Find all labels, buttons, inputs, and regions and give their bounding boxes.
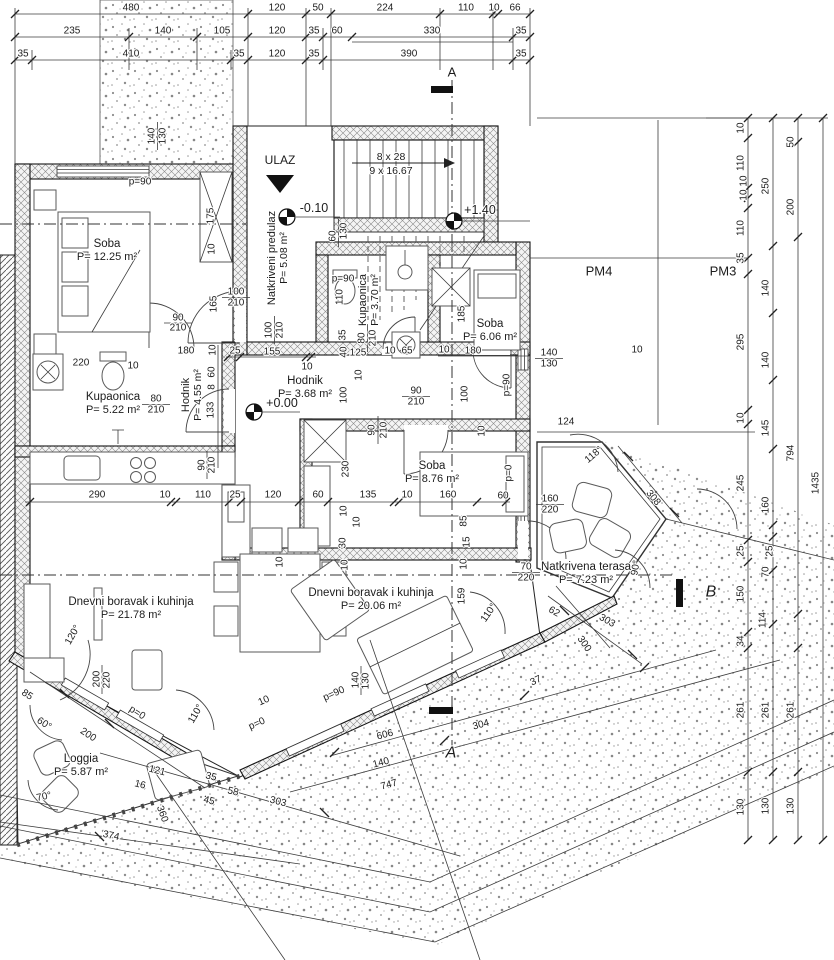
dimension-label: 295 [736, 333, 747, 350]
dimension-label: 220 [73, 358, 90, 369]
dimension-label: 35 [233, 49, 245, 60]
section-label: A [445, 745, 457, 762]
dimension-label: 235 [64, 26, 81, 37]
dimension-label: 40 [339, 346, 350, 358]
dimension-label: 133 [206, 401, 217, 418]
level-marker-icon [246, 404, 262, 420]
dimension-label: 120 [269, 26, 286, 37]
dimension-label: 60 [312, 490, 324, 501]
dimension-label: 124 [558, 417, 575, 428]
dimension-label: 100 [339, 386, 350, 403]
dimension-label: 10 [352, 516, 363, 528]
dimension-label: 290 [89, 490, 106, 501]
dimension-label: 85 [459, 515, 470, 527]
dimension-label: 80 [150, 394, 162, 405]
dimension-label: 110 [195, 490, 211, 501]
dimension-label: 261 [736, 701, 747, 718]
room-name: Dnevni boravak i kuhinja [68, 596, 194, 608]
dimension-label: 330 [424, 26, 441, 37]
dimension-label: 210 [207, 456, 218, 473]
room-area: P= 4.55 m² [192, 369, 204, 421]
dimension-label: 10 [159, 490, 171, 501]
room-area: P= 3.70 m² [369, 274, 381, 326]
dimension-label: 140 [147, 127, 158, 144]
room-name: Soba [94, 238, 121, 250]
dimension-label: 110 [458, 3, 474, 14]
dimension-label: 175 [206, 207, 217, 224]
dimension-label: 70 [761, 566, 772, 578]
coffee-table [132, 650, 162, 690]
dimension-label: 10 [207, 243, 218, 255]
room-name: Soba [419, 460, 446, 472]
dimension-label: 100 [228, 287, 245, 298]
dimension-label: p=90 [332, 274, 355, 285]
room-area: P= 8.76 m² [405, 473, 459, 485]
dimension-label: 130 [158, 127, 169, 144]
dimension-label: 220 [102, 671, 113, 688]
floor-plan-canvas: 4801205022411010662351401051203560330353… [0, 0, 834, 960]
dimension-label: 480 [123, 3, 140, 14]
dimension-label: 250 [761, 177, 772, 194]
dimension-label: 50 [312, 3, 324, 14]
dimension-label: 155 [264, 347, 281, 358]
dimension-label: 35 [736, 252, 747, 264]
dimension-label: 110 [736, 220, 747, 236]
section-label: B [706, 584, 717, 601]
dimension-label: 1435 [811, 471, 822, 494]
section-bar-a-top [431, 86, 453, 93]
dimension-label: 35 [515, 26, 527, 37]
dimension-label: 10 [739, 189, 750, 201]
room-name: Hodnik [287, 375, 323, 387]
section-label: A [448, 65, 457, 80]
dimension-label: 10 [459, 558, 470, 570]
floor-plan-page: 4801205022411010662351401051203560330353… [0, 0, 834, 960]
dimension-label: 210 [170, 323, 187, 334]
level-label: +1.40 [464, 203, 496, 217]
dimension-label: 130 [761, 797, 772, 814]
entry-label: ULAZ [265, 153, 296, 167]
room-name: Natkrivena terasa [541, 561, 632, 573]
level-marker-icon [279, 209, 295, 225]
dimension-label: 130 [541, 359, 558, 370]
dimension-label: 261 [786, 701, 797, 718]
dimension-label: 100 [264, 321, 275, 338]
parking-label: PM4 [586, 264, 613, 279]
dimension-label: 140 [541, 348, 558, 359]
dimension-label: 25 [765, 545, 776, 557]
dimension-label: 140 [155, 26, 172, 37]
dimension-label: 10 [739, 175, 750, 187]
dimension-label: 15 [462, 536, 473, 548]
room-area: P= 7.23 m² [559, 574, 613, 586]
dimension-label: 10 [301, 362, 313, 373]
dimension-label: 80 [357, 332, 368, 344]
level-label: -0.10 [300, 201, 329, 215]
dimension-label: 70 [520, 562, 532, 573]
dimension-label: 35 [515, 49, 527, 60]
stair-label: 9 x 16.67 [369, 165, 412, 177]
dimension-label: 10 [438, 345, 450, 356]
toilet [102, 362, 124, 390]
dimension-label: 110 [736, 155, 747, 171]
dimension-label: 140 [761, 351, 772, 368]
dimension-label: 10 [401, 490, 413, 501]
dimension-label: 60 [331, 26, 343, 37]
room-name: Kupaonica [86, 391, 141, 403]
room-name: Hodnik [180, 377, 192, 412]
room-name: Natkriveni predulaz [266, 211, 278, 305]
parking-label: PM3 [710, 264, 737, 279]
dimension-label: 224 [377, 3, 394, 14]
dimension-label: 165 [209, 295, 220, 312]
dimension-label: 65 [401, 346, 413, 357]
dimension-label: 160 [761, 496, 772, 513]
dimension-label: 10 [208, 344, 219, 356]
dimension-label: 66 [509, 3, 521, 14]
section-bar-a-bottom [429, 707, 453, 714]
dimension-label: 100 [460, 385, 471, 402]
room-name: Soba [477, 318, 504, 330]
dimension-label: 10 [275, 556, 286, 568]
dimension-label: 8 [207, 384, 218, 390]
dimension-label: 159 [457, 587, 468, 604]
sofa [24, 584, 50, 662]
level-label: +0.00 [266, 396, 298, 410]
dimension-label: 130 [361, 672, 372, 689]
dimension-label: 130 [339, 222, 350, 239]
dimension-label: 10 [736, 412, 747, 424]
dimension-label: 10 [631, 345, 643, 356]
dimension-label: p=90 [502, 373, 513, 396]
dimension-label: 210 [379, 421, 390, 438]
dimension-label: 160 [542, 494, 559, 505]
dimension-label: 35 [308, 49, 320, 60]
dimension-label: 10 [384, 346, 396, 357]
dimension-label: 410 [123, 49, 140, 60]
dimension-label: 10 [127, 361, 139, 372]
dimension-label: 34 [736, 635, 747, 647]
dimension-label: 210 [275, 321, 286, 338]
room-area: P= 5.08 m² [278, 232, 290, 284]
dimension-label: 35 [338, 329, 349, 341]
dimension-label: 25 [229, 346, 241, 357]
dimension-label: 185 [457, 305, 468, 322]
dimension-label: p=90 [129, 177, 152, 188]
dimension-label: 60 [328, 230, 339, 242]
dimension-label: 62 [546, 604, 562, 619]
dimension-label: 25 [736, 545, 747, 557]
dimension-label: 140 [761, 279, 772, 296]
dimension-label: 125 [350, 348, 367, 359]
dimension-label: 180 [465, 346, 482, 357]
room-area: P= 12.25 m² [77, 251, 138, 263]
dimension-label: 35 [308, 26, 320, 37]
room-area: P= 5.22 m² [86, 404, 140, 416]
dimension-label: 60 [497, 491, 509, 502]
section-bar-b [676, 579, 683, 607]
level-marker-icon [446, 213, 462, 229]
dimension-label: 261 [761, 701, 772, 718]
dimension-label: 10 [477, 425, 488, 437]
dimension-label: 210 [408, 397, 425, 408]
room-area: P= 6.06 m² [463, 331, 517, 343]
dimension-label: 50 [786, 136, 797, 148]
dimension-label: 10 [354, 369, 365, 381]
dimension-label: 210 [228, 298, 245, 309]
dimension-label: 30 [338, 537, 349, 549]
room-area: P= 21.78 m² [101, 609, 162, 621]
dimension-label: 200 [786, 198, 797, 215]
dimension-label: 110 [335, 289, 346, 305]
dimension-label: 230 [341, 460, 352, 477]
dimension-label: 390 [401, 49, 418, 60]
dimension-label: 60 [207, 366, 218, 378]
dimension-label: 120 [269, 49, 286, 60]
kitchen-sink [64, 456, 100, 480]
room-name: Dnevni boravak i kuhinja [308, 587, 434, 599]
dimension-label: p=0 [504, 464, 515, 481]
dimension-label: 35 [17, 49, 29, 60]
dimension-label: 130 [736, 798, 747, 815]
dimension-label: 135 [360, 490, 377, 501]
dimension-label: 160 [440, 490, 457, 501]
dimension-label: 120 [265, 490, 282, 501]
dimension-label: 90 [410, 386, 422, 397]
dimension-label: 220 [542, 505, 559, 516]
dimension-label: 25 [229, 490, 241, 501]
dimension-label: 220 [518, 573, 535, 584]
dimension-label: 90 [367, 424, 378, 436]
dimension-label: 180 [178, 346, 195, 357]
dimension-label: 245 [736, 474, 747, 491]
room-name: Loggia [64, 753, 99, 765]
stair-label: 8 x 28 [377, 151, 406, 163]
dimension-label: 210 [368, 329, 379, 346]
dimension-label: 145 [761, 419, 772, 436]
room-area: P= 5.87 m² [54, 766, 108, 778]
room-name: Kupaonica [357, 273, 369, 326]
dimension-label: 794 [786, 444, 797, 461]
dimension-label: 120 [269, 3, 286, 14]
dimension-label: 150 [736, 585, 747, 602]
dimension-label: 10 [736, 122, 747, 134]
room-area: P= 20.06 m² [341, 600, 402, 612]
dimension-label: 114 [758, 612, 769, 628]
dimension-label: 105 [214, 26, 231, 37]
dimension-label: 10 [339, 505, 350, 517]
dimension-label: 10 [488, 3, 500, 14]
dimension-label: 210 [148, 405, 165, 416]
dimension-label: 10 [340, 559, 351, 571]
dimension-label: 130 [786, 797, 797, 814]
